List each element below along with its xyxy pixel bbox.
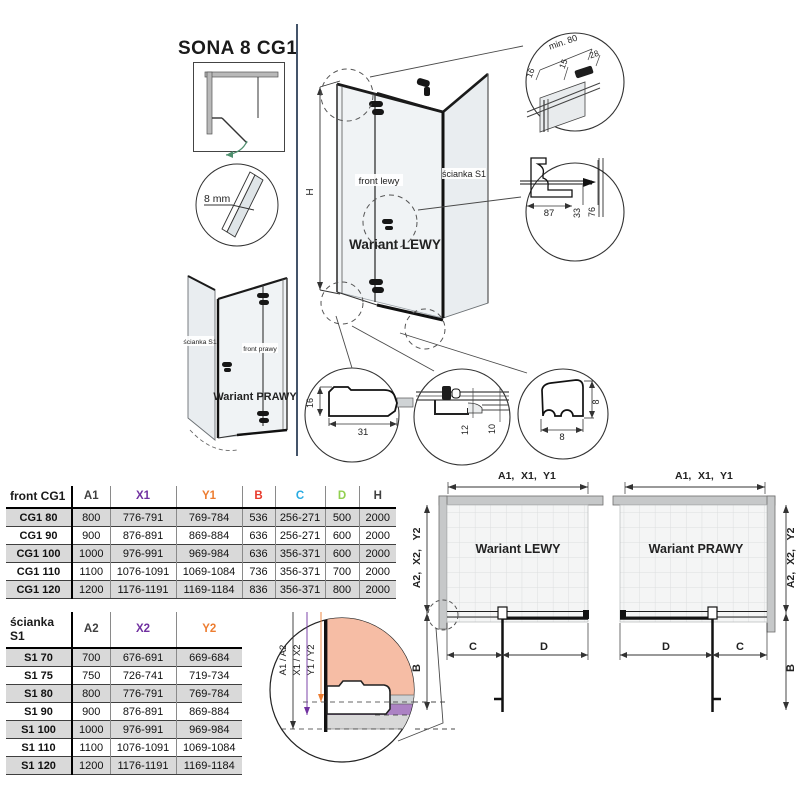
dim-x2: X2, <box>411 549 423 565</box>
variant-right-name: Wariant PRAWY <box>213 391 297 403</box>
front-left-label: front lewy <box>359 176 400 187</box>
dim-a2: A2, <box>785 572 797 588</box>
side-panel-glass <box>188 276 215 440</box>
detail-wall-profile: 87 33 76 <box>514 150 632 276</box>
table-row: S1 90900876-891869-884 <box>6 703 242 721</box>
top-wall <box>439 496 603 505</box>
top-dimension: A1, X1, Y1 <box>448 470 588 494</box>
front-panel-glass <box>218 278 287 438</box>
right-wall <box>767 496 775 632</box>
dim-31: 31 <box>358 427 369 438</box>
dim-d: D <box>540 641 548 653</box>
col-scianka-s1: ścianka S1 <box>6 612 72 648</box>
col-front-cg1: front CG1 <box>6 486 72 508</box>
col-h: H <box>359 486 396 508</box>
variant-left-name: Wariant LEWY <box>349 237 441 252</box>
dim-x1: X1, <box>698 470 714 482</box>
door-handle <box>382 219 393 224</box>
plan-right: A1, X1, Y1 Wariant PRAWY <box>593 468 800 746</box>
dim-x1-x2: X1 / X2 <box>292 644 303 675</box>
scianka-s1-table: ścianka S1 A2 X2 Y2 S1 70700676-691669-6… <box>6 612 242 775</box>
col-y2: Y2 <box>176 612 242 648</box>
dim-y2: Y2 <box>785 527 797 540</box>
door-handle <box>222 362 232 367</box>
dim-c: C <box>736 641 744 653</box>
dim-16: 16 <box>305 398 315 408</box>
dim-87: 87 <box>544 208 555 219</box>
top-dimension: A1, X1, Y1 <box>625 470 765 494</box>
dim-a1: A1, <box>675 470 691 482</box>
dim-d: D <box>662 641 670 653</box>
col-d: D <box>325 486 359 508</box>
dim-b: B <box>785 664 797 672</box>
table-row: CG1 90900876-891869-884636256-2716002000 <box>6 527 396 545</box>
plan-left-name: Wariant LEWY <box>476 542 562 556</box>
detail-top-corner: min. 80 15 28 16 <box>516 22 628 144</box>
dim-y1: Y1 <box>720 470 733 482</box>
plan-right-name: Wariant PRAWY <box>649 542 744 556</box>
table-row: S1 1001000976-991969-984 <box>6 721 242 739</box>
dim-8-vert: 8 <box>591 399 601 404</box>
col-c: C <box>275 486 325 508</box>
table-row: S1 12012001176-11911169-1184 <box>6 757 242 775</box>
table-row: S1 75750726-741719-734 <box>6 667 242 685</box>
table-header-row: ścianka S1 A2 X2 Y2 <box>6 612 242 648</box>
front-right-label: front prawy <box>243 346 277 353</box>
datasheet-page: SONA 8 CG1 8 mm <box>0 0 800 800</box>
dim-y1-y2: Y1 / Y2 <box>306 645 317 676</box>
dim-y1: Y1 <box>543 470 556 482</box>
dim-8-horiz: 8 <box>559 432 564 443</box>
col-x1: X1 <box>110 486 176 508</box>
col-x2: X2 <box>110 612 176 648</box>
glass-thickness-detail: 8 mm <box>192 160 284 252</box>
dim-10: 10 <box>487 424 497 434</box>
table-row: S1 70700676-691669-684 <box>6 648 242 667</box>
front-panel-glass <box>337 84 443 318</box>
variant-left-drawing: H front lewy ścianka S1 Wariant LEWY <box>296 30 526 370</box>
dim-a1-a2: A1 / A2 <box>278 645 289 676</box>
open-door <box>713 619 722 712</box>
col-a2: A2 <box>72 612 110 648</box>
page-title: SONA 8 CG1 <box>178 38 297 60</box>
glass-thickness-label: 8 mm <box>204 193 231 205</box>
col-b: B <box>242 486 275 508</box>
col-a1: A1 <box>72 486 110 508</box>
h-dim-label: H <box>305 188 316 195</box>
dim-a2: A2, <box>411 572 423 588</box>
front-cg1-table: front CG1 A1 X1 Y1 B C D H CG1 80800776-… <box>6 486 396 599</box>
dim-x1: X1, <box>521 470 537 482</box>
top-wall <box>613 496 775 505</box>
dim-y2: Y2 <box>411 527 423 540</box>
plan-pictogram <box>193 62 285 152</box>
bottom-dimension: D C <box>620 623 767 660</box>
table-row: CG1 1001000976-991969-984636356-37160020… <box>6 545 396 563</box>
dim-a1: A1, <box>498 470 514 482</box>
table-header-row: front CG1 A1 X1 Y1 B C D H <box>6 486 396 508</box>
side-panel-glass <box>443 74 488 318</box>
shower-area <box>620 505 767 622</box>
dim-12: 12 <box>460 425 470 435</box>
table-row: CG1 11011001076-10911069-1084736356-3717… <box>6 563 396 581</box>
rail-profile <box>327 681 390 714</box>
dim-x2: X2, <box>785 549 797 565</box>
gasket-drawing <box>542 380 583 416</box>
bottom-details: 16 31 12 10 8 8 <box>296 356 620 472</box>
table-row: CG1 80800776-791769-784536256-2715002000 <box>6 508 396 527</box>
dim-33: 33 <box>572 208 582 218</box>
seal-profile-drawing <box>329 387 413 416</box>
section-detail: A1 / A2 X1 / X2 Y1 / Y2 <box>263 596 478 800</box>
open-door <box>494 619 503 712</box>
side-dimension: Y2 X2, A2, B <box>783 505 797 710</box>
table-row: S1 80800776-791769-784 <box>6 685 242 703</box>
col-y1: Y1 <box>176 486 242 508</box>
dim-76: 76 <box>587 207 597 217</box>
wall-label-right: ścianka S1 <box>183 339 216 346</box>
table-row: S1 11011001076-10911069-1084 <box>6 739 242 757</box>
wall-label-left: ścianka S1 <box>442 169 486 179</box>
